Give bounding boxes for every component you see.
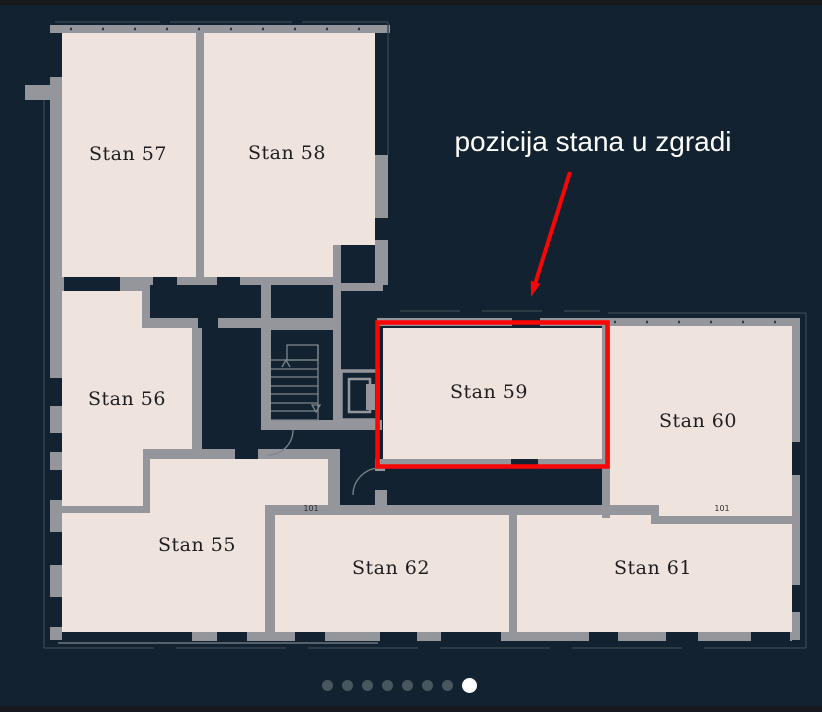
- room-label-stan-56: Stan 56: [88, 388, 166, 410]
- carousel-dot-7[interactable]: [442, 680, 453, 691]
- carousel-dot-2[interactable]: [342, 680, 353, 691]
- room-label-stan-55: Stan 55: [158, 534, 236, 556]
- room-label-stan-60: Stan 60: [659, 410, 737, 432]
- elevator: [341, 371, 378, 420]
- room-label-stan-59: Stan 59: [450, 381, 528, 403]
- stair-landing: [287, 345, 318, 360]
- carousel-dot-8-active[interactable]: [462, 678, 477, 693]
- carousel-dot-5[interactable]: [402, 680, 413, 691]
- carousel-dots: [322, 677, 477, 693]
- room-label-stan-57: Stan 57: [89, 143, 167, 165]
- door-number-label: 101: [303, 504, 318, 513]
- carousel-dot-3[interactable]: [362, 680, 373, 691]
- arrow-head-icon: [531, 281, 541, 297]
- room-label-stan-62: Stan 62: [352, 557, 430, 579]
- carousel-dot-4[interactable]: [382, 680, 393, 691]
- stairs-up-arrow-icon: [282, 360, 290, 367]
- carousel-dot-6[interactable]: [422, 680, 433, 691]
- door-number-label: 101: [714, 504, 729, 513]
- room-label-stan-58: Stan 58: [248, 142, 326, 164]
- annotation-label: pozicija stana u zgradi: [443, 126, 743, 158]
- staircase: [271, 345, 320, 420]
- bottom-frame-strip: [0, 706, 822, 712]
- floor-plan: Stan 55 Stan 56 Stan 57 Stan 58 Stan 59 …: [0, 0, 822, 712]
- annotation-arrow: [531, 172, 570, 297]
- carousel-dot-1[interactable]: [322, 680, 333, 691]
- room-label-stan-61: Stan 61: [614, 557, 692, 579]
- carousel-slide[interactable]: Stan 55 Stan 56 Stan 57 Stan 58 Stan 59 …: [0, 0, 822, 712]
